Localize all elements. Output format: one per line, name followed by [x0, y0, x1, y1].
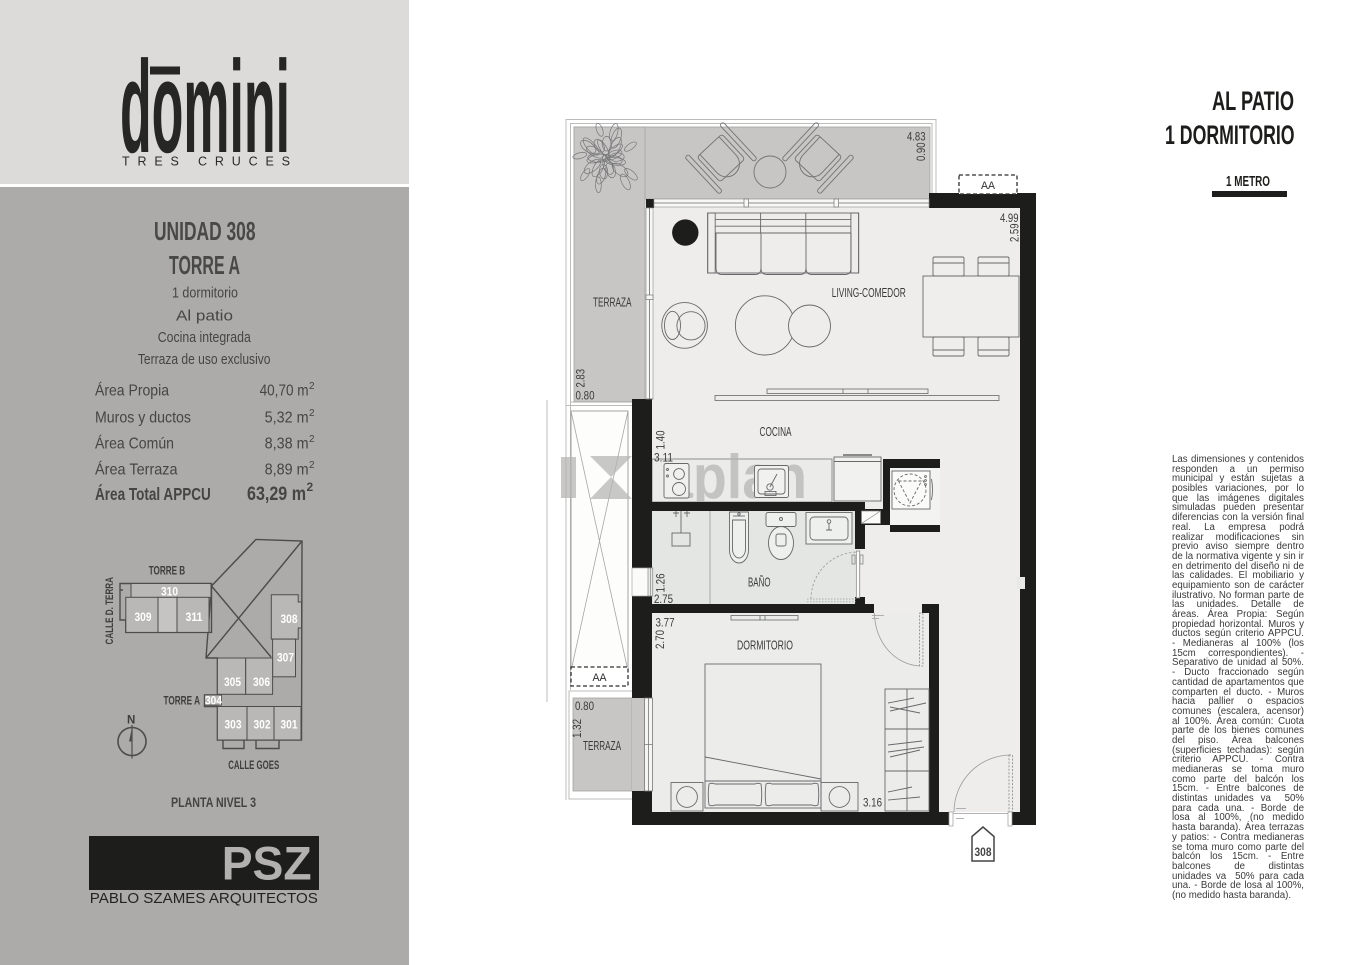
svg-text:8,38 m: 8,38 m — [265, 436, 309, 453]
svg-text:311: 311 — [186, 610, 203, 624]
svg-text:1 METRO: 1 METRO — [1226, 174, 1270, 190]
svg-text:CALLE D. TERRA: CALLE D. TERRA — [104, 577, 116, 645]
svg-text:N: N — [127, 715, 135, 727]
svg-text:CALLE GOES: CALLE GOES — [228, 760, 279, 772]
svg-text:3.16: 3.16 — [863, 796, 882, 810]
svg-text:3.11: 3.11 — [654, 451, 673, 465]
svg-text:310: 310 — [161, 585, 178, 599]
svg-text:2: 2 — [309, 460, 315, 471]
svg-text:PSZ: PSZ — [222, 837, 312, 890]
svg-text:8,89 m: 8,89 m — [265, 461, 309, 478]
svg-text:PLANTA NIVEL 3: PLANTA NIVEL 3 — [171, 795, 256, 810]
svg-text:63,29 m: 63,29 m — [247, 484, 306, 505]
svg-text:1.32: 1.32 — [570, 719, 584, 738]
svg-text:Muros y ductos: Muros y ductos — [95, 410, 191, 427]
svg-text:TERRAZA: TERRAZA — [593, 296, 632, 310]
svg-text:0.80: 0.80 — [575, 699, 594, 713]
svg-text:Al patio: Al patio — [176, 308, 233, 325]
svg-text:DORMITORIO: DORMITORIO — [737, 639, 793, 653]
svg-text:302: 302 — [254, 718, 271, 732]
svg-text:BAÑO: BAÑO — [748, 576, 771, 590]
svg-text:0.90: 0.90 — [914, 142, 928, 161]
svg-text:AA: AA — [593, 672, 608, 684]
svg-text:4.83: 4.83 — [907, 130, 926, 144]
svg-text:2.83: 2.83 — [574, 369, 588, 388]
svg-text:1 dormitorio: 1 dormitorio — [172, 285, 238, 302]
svg-text:3.77: 3.77 — [656, 616, 675, 630]
svg-text:TORRE B: TORRE B — [149, 566, 186, 578]
svg-text:2.59: 2.59 — [1008, 223, 1022, 242]
svg-text:COCINA: COCINA — [760, 425, 792, 439]
svg-text:5,32 m: 5,32 m — [265, 410, 309, 427]
svg-text:TORRE A: TORRE A — [169, 250, 240, 280]
svg-text:AA: AA — [981, 180, 996, 192]
svg-text:40,70 m: 40,70 m — [260, 383, 309, 400]
svg-text:2: 2 — [307, 480, 314, 494]
svg-text:Área Terraza: Área Terraza — [95, 459, 178, 478]
svg-text:309: 309 — [135, 610, 152, 624]
svg-text:Cocina integrada: Cocina integrada — [158, 329, 252, 346]
svg-text:4.99: 4.99 — [1000, 211, 1019, 225]
svg-text:308: 308 — [281, 612, 298, 626]
svg-text:Terraza de uso exclusivo: Terraza de uso exclusivo — [138, 351, 271, 368]
svg-text:304: 304 — [205, 694, 222, 708]
svg-text:2: 2 — [309, 381, 315, 392]
svg-text:UNIDAD 308: UNIDAD 308 — [154, 216, 256, 246]
svg-text:PABLO SZAMES ARQUITECTOS: PABLO SZAMES ARQUITECTOS — [90, 891, 318, 907]
svg-text:2.75: 2.75 — [654, 592, 673, 606]
svg-text:LIVING-COMEDOR: LIVING-COMEDOR — [832, 286, 906, 300]
svg-text:0.80: 0.80 — [576, 388, 595, 402]
svg-text:2.70: 2.70 — [653, 630, 667, 649]
svg-text:AL PATIO: AL PATIO — [1212, 86, 1294, 116]
svg-text:308: 308 — [975, 845, 992, 859]
svg-text:305: 305 — [224, 675, 241, 689]
svg-text:307: 307 — [277, 651, 294, 665]
svg-text:1.26: 1.26 — [654, 573, 668, 592]
svg-text:2: 2 — [309, 434, 315, 445]
svg-text:301: 301 — [281, 718, 298, 732]
svg-text:303: 303 — [225, 718, 242, 732]
svg-text:Área Total APPCU: Área Total APPCU — [95, 483, 211, 504]
svg-text:2: 2 — [309, 408, 315, 419]
svg-text:TERRAZA: TERRAZA — [583, 739, 621, 753]
svg-text:Área Propia: Área Propia — [95, 381, 169, 400]
svg-text:306: 306 — [253, 675, 270, 689]
svg-text:TORRE A: TORRE A — [164, 696, 201, 708]
svg-text:Área Común: Área Común — [95, 434, 174, 453]
svg-text:1 DORMITORIO: 1 DORMITORIO — [1165, 120, 1295, 150]
svg-text:1.40: 1.40 — [654, 430, 668, 449]
